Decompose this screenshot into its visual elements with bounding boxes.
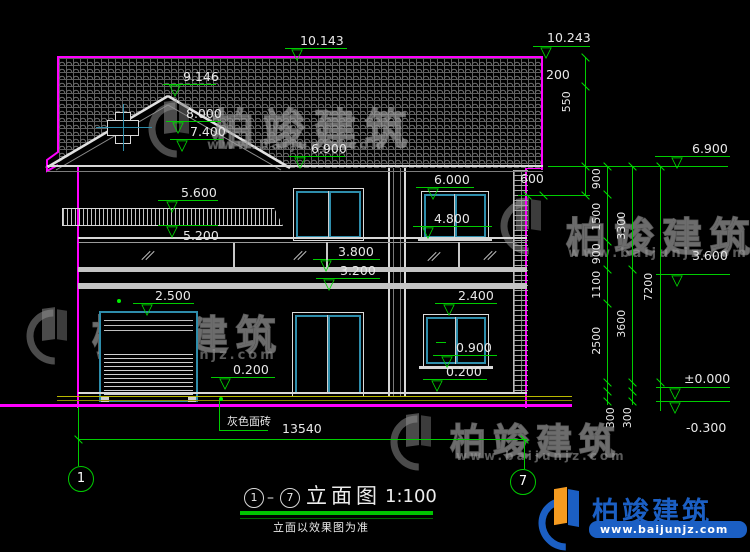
axis-7-label: 7: [519, 474, 527, 489]
dimension-extension-line: [219, 399, 220, 431]
railing-divider: [458, 242, 460, 268]
railing-glass-mark-icon: [292, 249, 304, 261]
dim-label: 3600: [616, 296, 628, 352]
level-label: 6.000: [434, 172, 470, 187]
level-triangle-icon: ▽: [537, 47, 555, 58]
leader-dot: [117, 299, 121, 303]
porch-column: [388, 168, 406, 396]
material-note: 灰色面砖: [227, 416, 271, 428]
level-triangle-icon: ▽: [424, 188, 442, 199]
railing-glass-mark-icon: [482, 249, 494, 261]
title-underline-2: [240, 518, 433, 519]
level-triangle-icon: ▽: [216, 378, 234, 389]
level-label: 6.900: [692, 141, 728, 156]
level-triangle-icon: ▽: [166, 85, 184, 96]
dimension-extension-line: [585, 57, 586, 195]
dimension-extension-line: [524, 439, 525, 469]
garage-rolling-door: [99, 311, 198, 402]
level-triangle-icon: ▽: [173, 140, 191, 151]
level-label: 2.400: [458, 288, 494, 303]
dim-label: 550: [561, 74, 573, 130]
level-label: 3.200: [340, 263, 376, 278]
axis-1-label: 1: [77, 471, 85, 486]
level-label: 3.600: [692, 248, 728, 263]
brick-pilaster: [513, 170, 528, 394]
structure-line: [57, 396, 572, 397]
level-label: 0.200: [233, 362, 269, 377]
dimension-line: [548, 166, 728, 167]
level-triangle-icon: ▽: [668, 275, 686, 286]
title-axis-7: 7: [287, 491, 294, 504]
level-triangle-icon: ▽: [668, 157, 686, 168]
level-triangle-icon: ▽: [163, 226, 181, 237]
level-label: 8.000: [186, 106, 222, 121]
company-logo-icon: [538, 486, 590, 546]
level-label: 4.800: [434, 211, 470, 226]
axis-marker-1: 1: [68, 466, 94, 492]
level-triangle-icon: ▽: [291, 157, 309, 168]
level-label: 9.146: [183, 69, 219, 84]
level-triangle-icon: ▽: [428, 380, 446, 391]
title-note: 立面以效果图为准: [273, 522, 369, 534]
dim-label-total-height: 7200: [643, 259, 655, 315]
structure-line: [78, 392, 527, 394]
level-triangle-icon: ▽: [440, 304, 458, 315]
structure-line: [527, 168, 543, 169]
dimension-extension-line: [660, 166, 661, 411]
dimension-extension-line: [78, 407, 79, 466]
railing-glass-mark-icon: [140, 249, 152, 261]
level-label: 7.400: [190, 124, 226, 139]
level-label: 10.243: [547, 30, 591, 45]
title-underline: [240, 511, 433, 515]
dim-label: 1100: [591, 257, 603, 313]
roof-left-edge: [47, 57, 58, 171]
level-label: 5.600: [181, 185, 217, 200]
level-triangle-icon: ▽: [169, 122, 187, 133]
dimension-line: [655, 156, 730, 157]
railing-divider: [123, 104, 124, 151]
title-axis-circle-1: 1: [244, 488, 264, 508]
dimension-line: [78, 439, 527, 440]
dim-label: 3300: [616, 198, 628, 254]
title-axis-1: 1: [251, 491, 258, 504]
level-triangle-icon: ▽: [138, 304, 156, 315]
structure-line: [57, 400, 572, 401]
level-triangle-icon: ▽: [317, 260, 335, 271]
level-label: 3.800: [338, 244, 374, 259]
level-triangle-icon: ▽: [163, 201, 181, 212]
dimension-line: [436, 342, 446, 343]
axis-marker-7: 7: [510, 469, 536, 495]
title-axis-circle-7: 7: [280, 488, 300, 508]
balcony-door-upper: [293, 188, 364, 241]
level-triangle-icon: ▽: [438, 356, 456, 367]
entry-double-door: [292, 312, 364, 397]
elevation-drawing-canvas: 1 7 10.143 10.243 9.146 8.000 7.400 6.90…: [0, 0, 750, 552]
level-label: ±0.000: [684, 371, 730, 386]
dimension-line: [219, 430, 268, 431]
level-label: 0.900: [456, 340, 492, 355]
company-logo-url: www.baijunjz.com: [600, 523, 728, 536]
ground-line: [0, 404, 572, 407]
level-label: -0.300: [686, 420, 726, 435]
drawing-title: 立面图: [306, 485, 381, 507]
dim-label-total-width: 13540: [282, 422, 322, 435]
level-label: 6.900: [311, 141, 347, 156]
leader-dot: [219, 397, 223, 401]
railing-glass-mark-icon: [426, 250, 438, 262]
garage-door-slats: [104, 354, 193, 395]
level-label: 2.500: [155, 288, 191, 303]
drawing-scale: 1:100: [385, 488, 437, 507]
dim-label: 600: [520, 172, 544, 185]
dimension-extension-line: [632, 166, 633, 405]
dim-label: 2500: [591, 313, 603, 369]
structure-line: [96, 127, 152, 128]
roof-right-edge: [541, 57, 543, 170]
level-triangle-icon: ▽: [419, 227, 437, 238]
level-triangle-icon: ▽: [288, 49, 306, 60]
level-label: 10.143: [300, 33, 344, 48]
dim-label: 300: [605, 390, 617, 446]
gable-face: [46, 96, 290, 170]
level-label: 5.200: [183, 228, 219, 243]
railing-divider: [233, 243, 235, 268]
level-triangle-icon: ▽: [320, 279, 338, 290]
title-separator: –: [267, 491, 274, 506]
level-triangle-icon: ▽: [666, 402, 684, 413]
dimension-extension-line: [607, 166, 608, 405]
